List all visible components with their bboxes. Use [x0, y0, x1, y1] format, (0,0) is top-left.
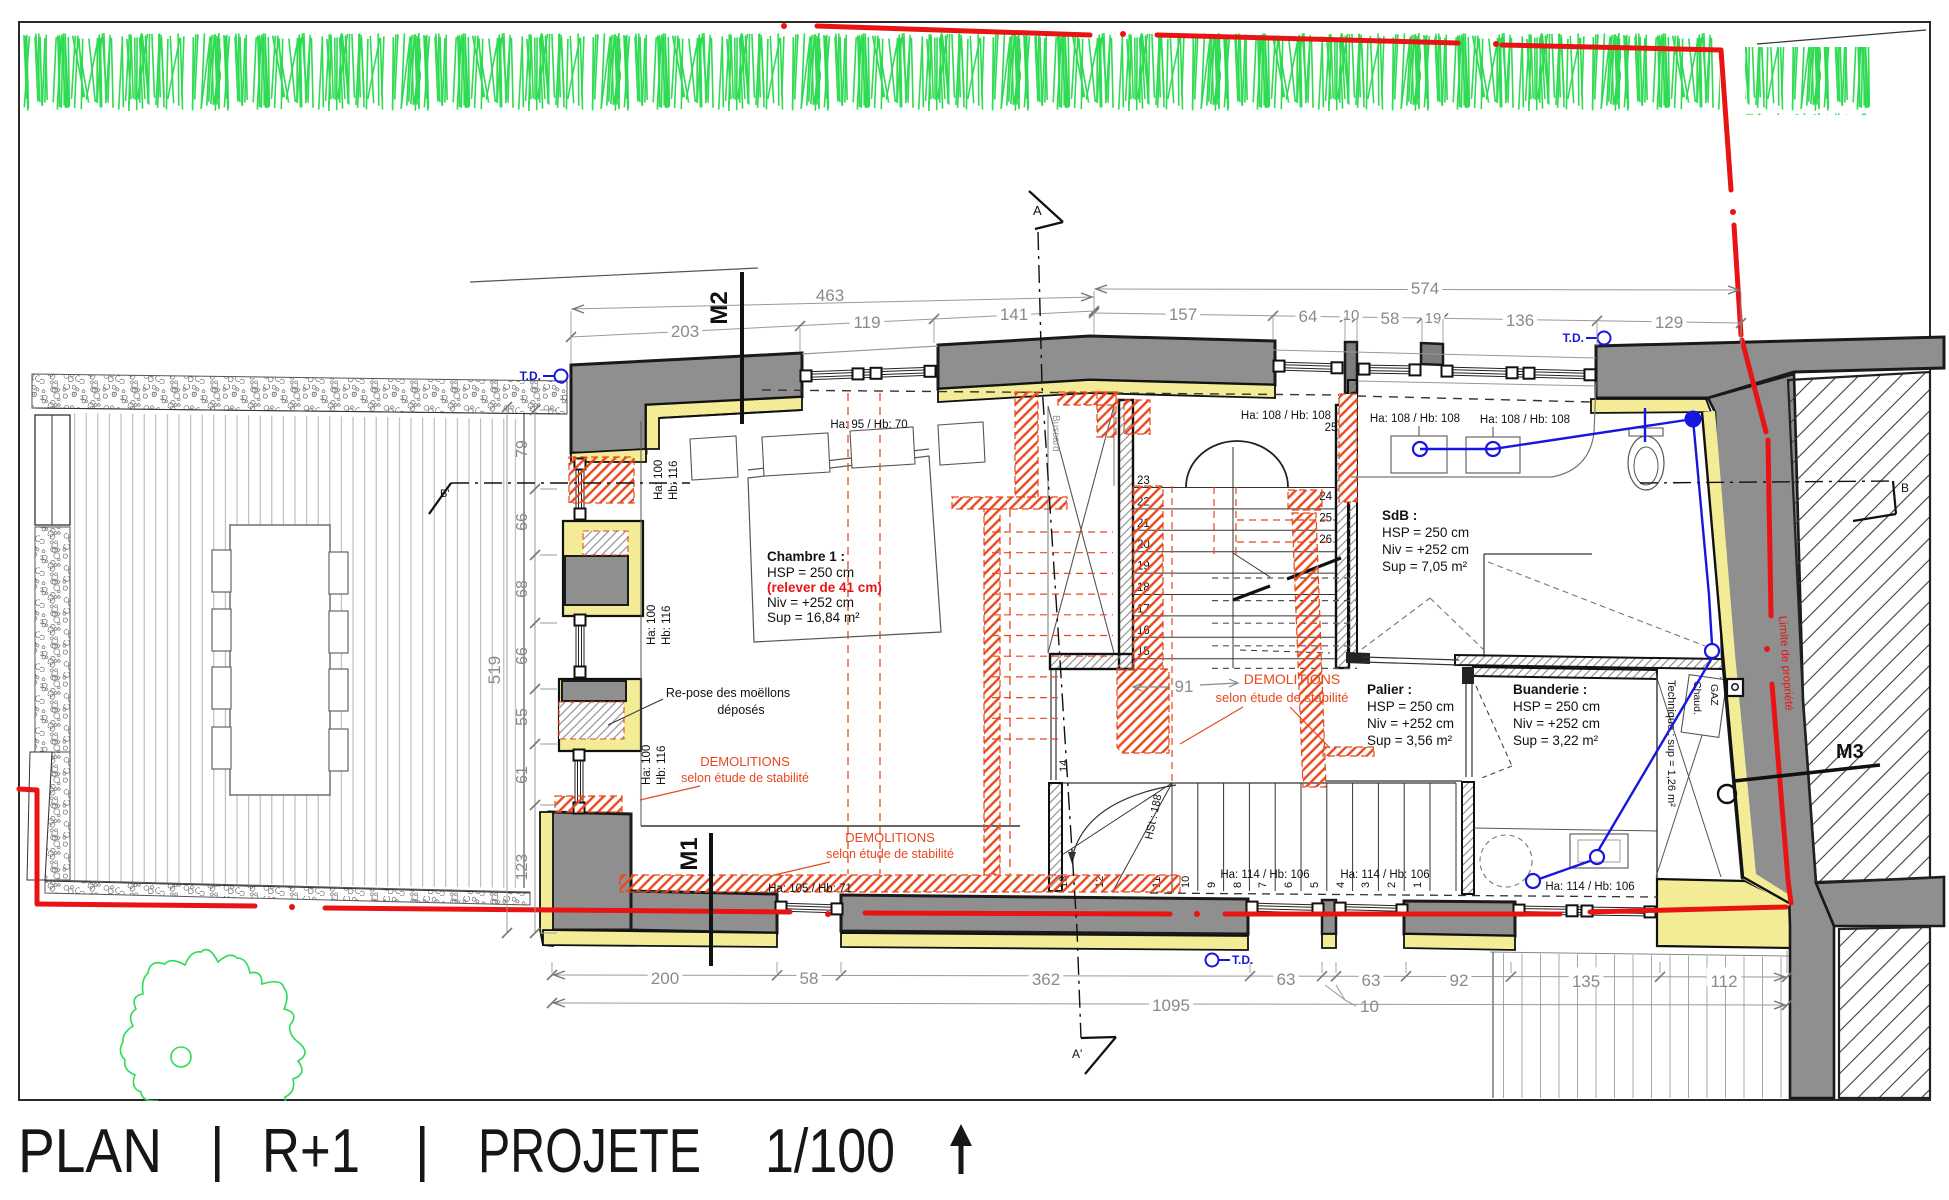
svg-text:SdB :: SdB : — [1382, 508, 1417, 523]
svg-text:58: 58 — [1381, 309, 1400, 328]
svg-text:HSP = 250 cm: HSP = 250 cm — [1513, 699, 1600, 714]
svg-text:58: 58 — [800, 969, 819, 988]
svg-text:141: 141 — [1000, 305, 1028, 324]
svg-text:4: 4 — [1335, 882, 1347, 888]
svg-text:362: 362 — [1032, 970, 1060, 989]
svg-text:Chaud.: Chaud. — [1691, 681, 1703, 715]
svg-text:Ha: 100: Ha: 100 — [646, 605, 658, 645]
svg-text:Ha: 108 / Hb: 108: Ha: 108 / Hb: 108 — [1241, 410, 1331, 422]
svg-text:Buanderie :: Buanderie : — [1513, 682, 1587, 697]
svg-text:HSP = 250 cm: HSP = 250 cm — [1382, 525, 1469, 540]
svg-text:Niv = +252 cm: Niv = +252 cm — [1382, 542, 1469, 557]
svg-text:519: 519 — [485, 656, 504, 684]
svg-text:91: 91 — [1175, 677, 1194, 696]
svg-text:Ha: 108 / Hb: 108: Ha: 108 / Hb: 108 — [1480, 414, 1570, 426]
svg-text:157: 157 — [1169, 305, 1197, 324]
svg-text:Chambre 1 :: Chambre 1 : — [767, 549, 845, 564]
svg-text:Sup = 3,56 m²: Sup = 3,56 m² — [1367, 733, 1453, 748]
svg-text:6: 6 — [1283, 882, 1295, 888]
svg-text:B': B' — [440, 488, 449, 500]
svg-text:112: 112 — [1710, 972, 1737, 991]
svg-text:5: 5 — [1309, 882, 1321, 888]
svg-text:61: 61 — [514, 766, 531, 784]
svg-text:123: 123 — [514, 854, 531, 881]
svg-text:selon étude de stabilité: selon étude de stabilité — [1216, 690, 1349, 705]
svg-text:66: 66 — [514, 513, 531, 531]
svg-text:Palier :: Palier : — [1367, 682, 1412, 697]
svg-text:GAZ: GAZ — [1708, 684, 1720, 706]
svg-text:574: 574 — [1411, 279, 1439, 298]
svg-text:Niv = +252 cm: Niv = +252 cm — [1513, 716, 1600, 731]
svg-text:23: 23 — [1137, 475, 1150, 487]
svg-text:92: 92 — [1450, 971, 1469, 990]
svg-text:19: 19 — [1425, 310, 1442, 327]
svg-text:M3: M3 — [1836, 741, 1864, 763]
svg-text:66: 66 — [514, 647, 531, 665]
svg-text:T.D.: T.D. — [1563, 331, 1584, 345]
svg-text:Niv = +252 cm: Niv = +252 cm — [1367, 716, 1454, 731]
svg-text:PLAN: PLAN — [18, 1117, 162, 1186]
svg-text:55: 55 — [514, 708, 531, 726]
svg-text:2: 2 — [1386, 882, 1398, 888]
svg-text:1: 1 — [1412, 882, 1424, 888]
svg-text:Hb: 116: Hb: 116 — [656, 746, 668, 785]
svg-text:selon étude de stabilité: selon étude de stabilité — [681, 771, 809, 785]
svg-text:B: B — [1901, 481, 1909, 495]
svg-text:203: 203 — [671, 322, 699, 341]
svg-text:Re-pose des moëllons: Re-pose des moëllons — [666, 686, 790, 700]
svg-text:68: 68 — [514, 580, 531, 598]
svg-text:Sup = 16,84 m²: Sup = 16,84 m² — [767, 610, 860, 625]
svg-text:135: 135 — [1572, 972, 1600, 991]
svg-text:Bussard: Bussard — [1050, 415, 1061, 452]
svg-text:HSP = 250 cm: HSP = 250 cm — [767, 565, 854, 580]
svg-text:DEMOLITIONS: DEMOLITIONS — [845, 830, 935, 845]
svg-text:Ha: 114 / Hb: 106: Ha: 114 / Hb: 106 — [1340, 869, 1429, 881]
svg-text:79: 79 — [514, 440, 531, 458]
svg-text:M1: M1 — [676, 837, 703, 870]
svg-text:3: 3 — [1360, 882, 1372, 888]
svg-text:(relever de 41 cm): (relever de 41 cm) — [767, 580, 882, 595]
svg-text:136: 136 — [1506, 311, 1534, 330]
svg-text:Ha: 114 / Hb: 106: Ha: 114 / Hb: 106 — [1545, 881, 1634, 893]
svg-text:Ha: 100: Ha: 100 — [653, 460, 665, 500]
svg-text:selon étude de stabilité: selon étude de stabilité — [826, 847, 954, 861]
svg-text:Sup = 3,22 m²: Sup = 3,22 m² — [1513, 733, 1599, 748]
svg-text:Hb: 116: Hb: 116 — [661, 606, 673, 645]
svg-text:PROJETE: PROJETE — [478, 1117, 701, 1186]
svg-text:Technique : sup = 1,26 m²: Technique : sup = 1,26 m² — [1665, 680, 1677, 807]
svg-text:7: 7 — [1257, 882, 1269, 888]
svg-text:10: 10 — [1180, 876, 1192, 888]
svg-text:déposés: déposés — [717, 703, 764, 717]
svg-text:8: 8 — [1232, 882, 1244, 888]
svg-text:DEMOLITIONS: DEMOLITIONS — [1244, 671, 1340, 687]
svg-text:T.D.: T.D. — [520, 369, 541, 383]
svg-text:DEMOLITIONS: DEMOLITIONS — [700, 754, 790, 769]
svg-text:Ha: 108 / Hb: 108: Ha: 108 / Hb: 108 — [1370, 413, 1460, 425]
svg-text:63: 63 — [1277, 970, 1296, 989]
svg-text:129: 129 — [1655, 313, 1683, 332]
svg-text:14: 14 — [1058, 760, 1070, 772]
svg-text:1095: 1095 — [1152, 996, 1190, 1015]
svg-text:Hb: 116: Hb: 116 — [668, 461, 680, 500]
svg-text:HSP = 250 cm: HSP = 250 cm — [1367, 699, 1454, 714]
svg-text:A': A' — [1072, 1047, 1082, 1061]
svg-text:M2: M2 — [706, 291, 733, 324]
svg-text:9: 9 — [1206, 882, 1218, 888]
svg-text:Ha: 95 / Hb: 70: Ha: 95 / Hb: 70 — [830, 419, 907, 431]
svg-text:Niv = +252 cm: Niv = +252 cm — [767, 595, 854, 610]
svg-text:Sup = 7,05 m²: Sup = 7,05 m² — [1382, 559, 1468, 574]
svg-text:463: 463 — [816, 286, 844, 305]
svg-text:63: 63 — [1362, 971, 1381, 990]
svg-text:Ha: 100: Ha: 100 — [641, 745, 653, 785]
svg-text:200: 200 — [651, 969, 679, 988]
svg-text:Ha: 105 / Hb: 71: Ha: 105 / Hb: 71 — [768, 883, 852, 895]
svg-text:119: 119 — [853, 313, 880, 332]
svg-text:Ha: 114 / Hb: 106: Ha: 114 / Hb: 106 — [1220, 869, 1309, 881]
svg-text:10: 10 — [1360, 997, 1379, 1016]
svg-text:25: 25 — [1319, 513, 1332, 525]
svg-text:1/100: 1/100 — [765, 1117, 895, 1186]
svg-text:64: 64 — [1299, 307, 1318, 326]
svg-text:26: 26 — [1319, 534, 1332, 546]
svg-text:25: 25 — [1325, 422, 1338, 434]
svg-text:A: A — [1033, 203, 1042, 218]
svg-text:R+1: R+1 — [262, 1117, 360, 1186]
